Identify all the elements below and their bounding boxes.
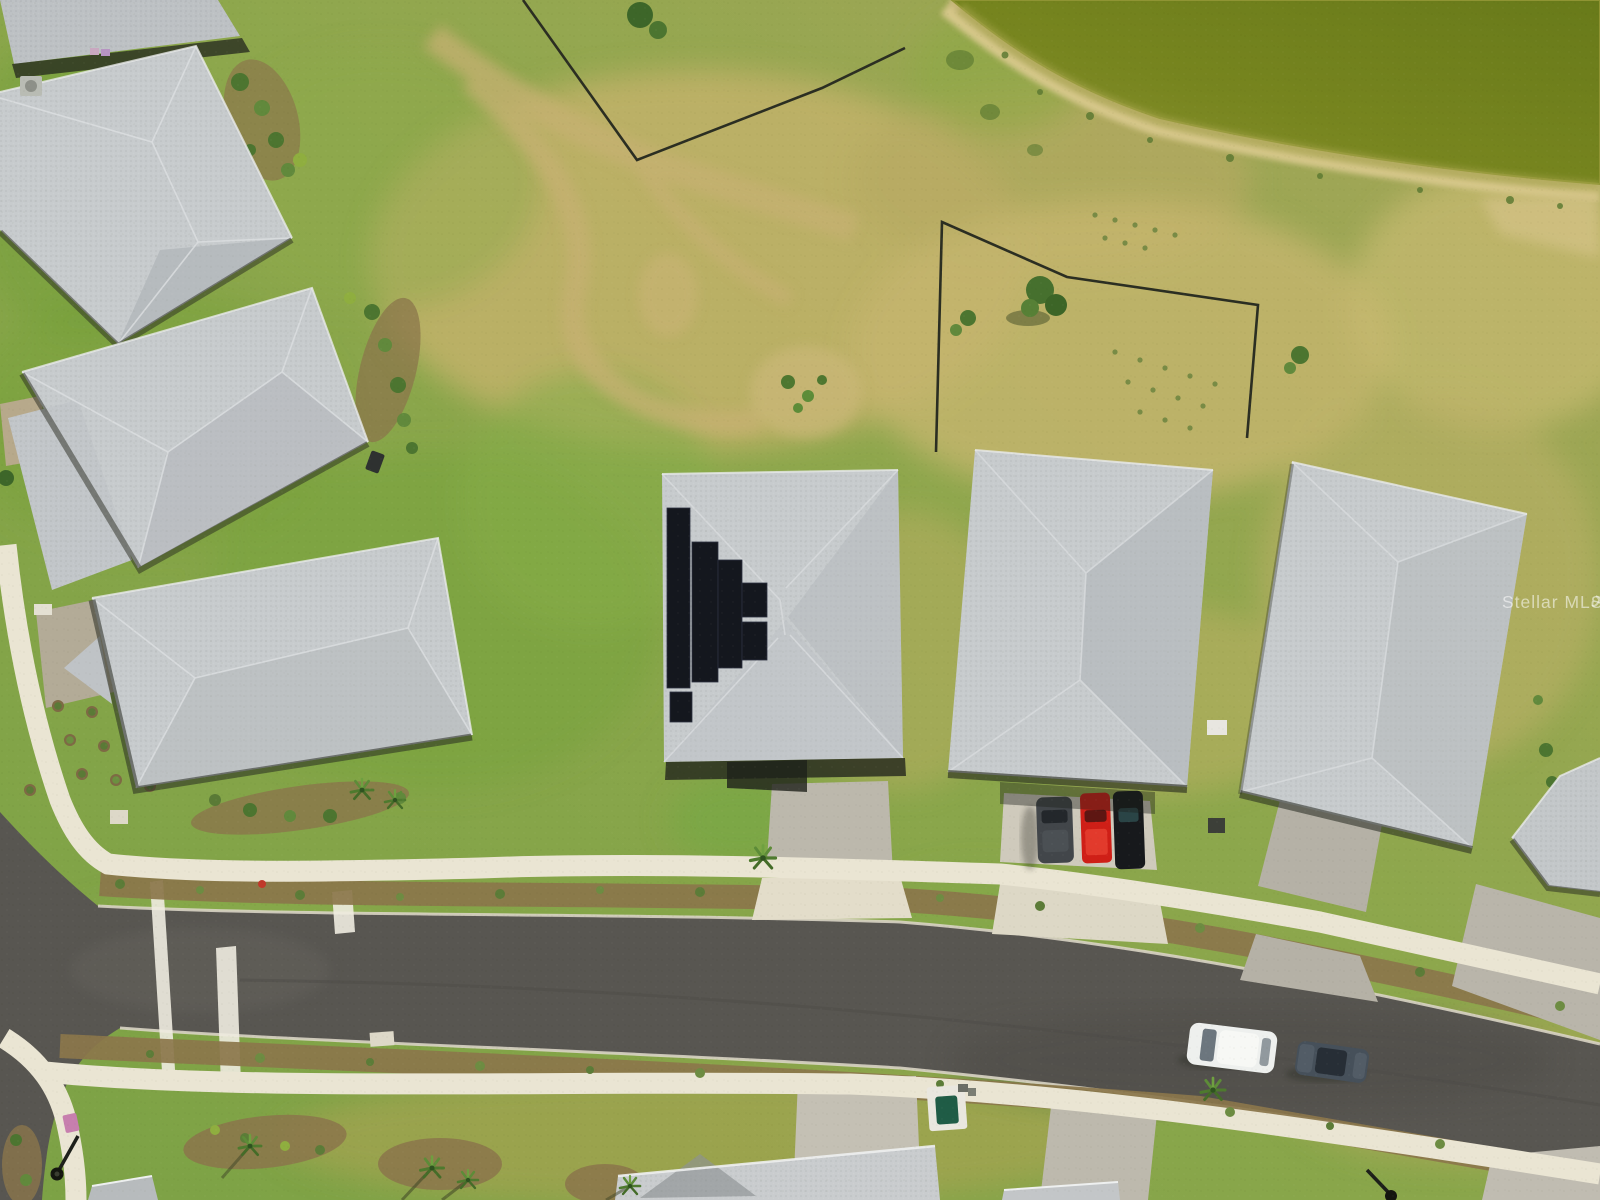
photo-grain-overlay <box>0 0 1600 1200</box>
aerial-photo: Stellar MLS <box>0 0 1600 1200</box>
aerial-photo-canvas: Stellar MLS <box>0 0 1600 1200</box>
